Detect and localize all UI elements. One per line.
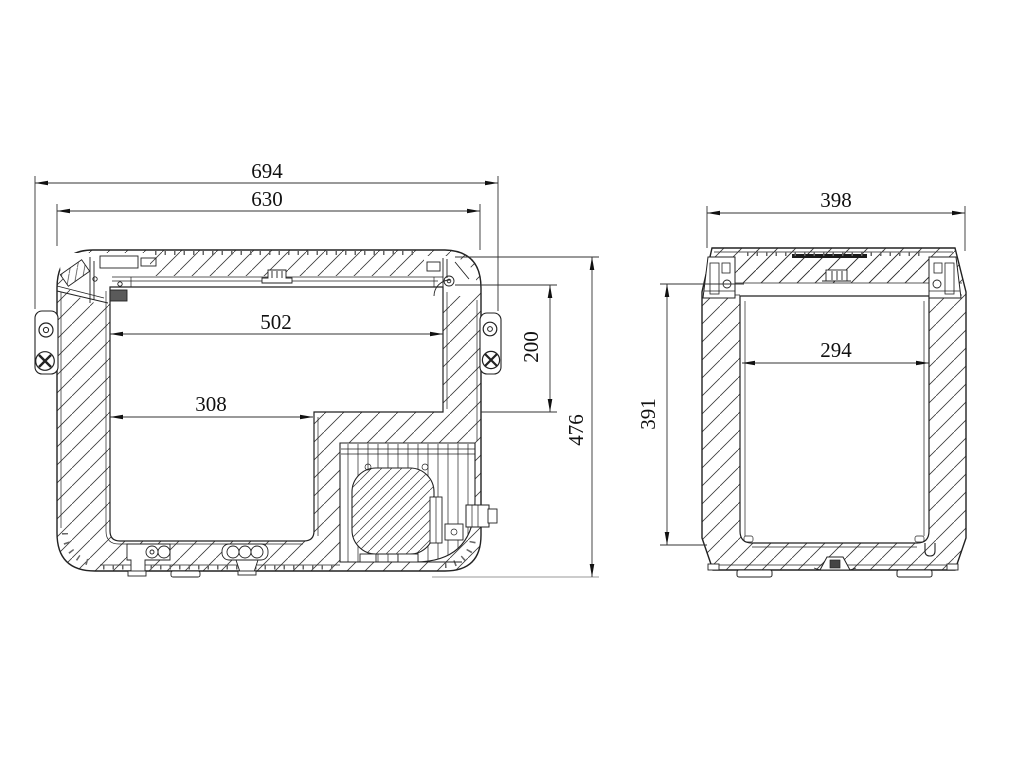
dim-overall-width-side: 694 (251, 159, 283, 183)
dim-inner-width-end: 294 (820, 338, 852, 362)
corner-latch-right (929, 257, 961, 298)
dim-inner-width-bottom: 308 (195, 392, 227, 416)
technical-drawing: 694 630 502 308 200 476 (0, 0, 1024, 768)
lid-clip-end (822, 270, 851, 281)
end-section-view: 398 294 391 (636, 188, 966, 577)
dim-inner-width-top: 502 (260, 310, 292, 334)
end-foot-right (897, 570, 932, 577)
dim-lid-width: 630 (251, 187, 283, 211)
end-interior-cavity (740, 296, 929, 543)
dim-overall-width-end: 398 (820, 188, 852, 212)
dim-inner-height-end: 391 (636, 398, 660, 430)
hinge-plate-right (480, 313, 501, 374)
dim-overall-height: 476 (564, 414, 588, 446)
dim-step-depth: 200 (519, 331, 543, 363)
foot-pad (171, 571, 200, 577)
side-section-view: 694 630 502 308 200 476 (35, 159, 599, 577)
corner-latch-left (703, 257, 735, 298)
end-foot-left (737, 570, 772, 577)
lid-seal-strip (792, 254, 867, 258)
power-connector (466, 505, 489, 527)
latch-plate-left (35, 311, 58, 374)
